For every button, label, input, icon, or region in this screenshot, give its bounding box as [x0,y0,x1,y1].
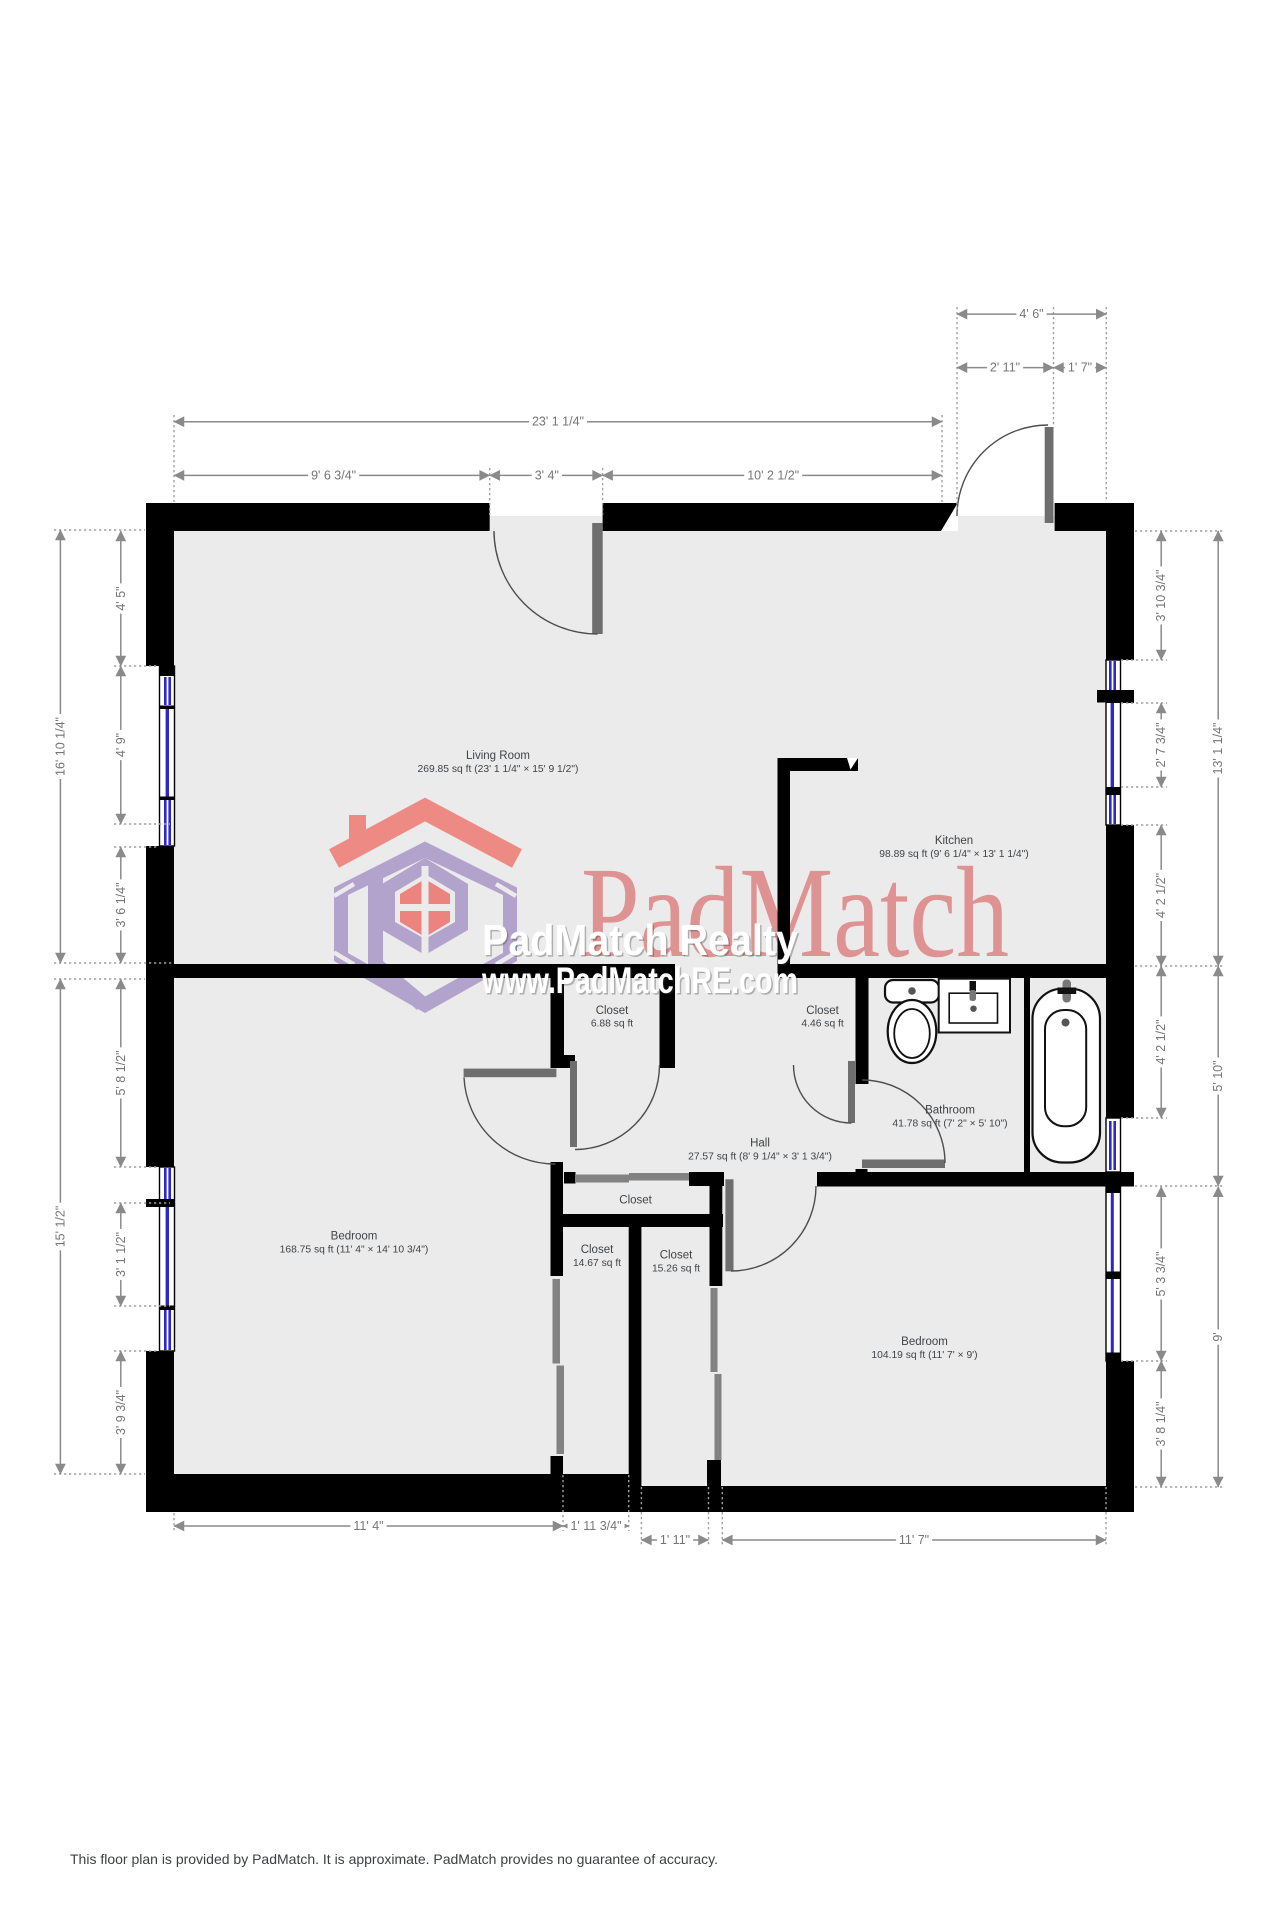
svg-text:Kitchen: Kitchen [935,835,973,847]
svg-text:6.88 sq ft: 6.88 sq ft [591,1019,633,1030]
svg-text:4' 5": 4' 5" [114,586,128,610]
svg-text:Closet: Closet [596,1005,629,1017]
svg-text:5' 3 3/4": 5' 3 3/4" [1154,1251,1168,1296]
svg-text:www.PadMatchRE.com: www.PadMatchRE.com [481,960,798,1001]
svg-text:This floor plan is provided by: This floor plan is provided by PadMatch.… [70,1851,718,1867]
svg-text:Closet: Closet [660,1250,693,1262]
svg-text:Closet: Closet [619,1194,652,1206]
svg-text:11' 4": 11' 4" [353,1519,383,1533]
svg-text:Living Room: Living Room [466,750,530,762]
svg-text:3' 1 1/2": 3' 1 1/2" [114,1232,128,1277]
svg-text:Bedroom: Bedroom [901,1336,948,1348]
svg-text:3' 4": 3' 4" [535,468,559,482]
svg-text:Closet: Closet [581,1244,614,1256]
svg-text:3' 6 1/4": 3' 6 1/4" [114,882,128,927]
svg-text:3' 8 1/4": 3' 8 1/4" [1154,1401,1168,1446]
svg-text:1' 7": 1' 7" [1068,361,1092,375]
svg-text:14.67 sq ft: 14.67 sq ft [573,1258,621,1269]
svg-text:3' 10 3/4": 3' 10 3/4" [1154,569,1168,621]
svg-text:PadMatch Realty: PadMatch Realty [482,916,798,965]
svg-text:4' 2 1/2": 4' 2 1/2" [1154,1019,1168,1064]
svg-text:4.46 sq ft: 4.46 sq ft [801,1019,843,1030]
svg-text:41.78 sq ft (7' 2" × 5' 10"): 41.78 sq ft (7' 2" × 5' 10") [892,1119,1007,1130]
svg-text:104.19 sq ft (11' 7' × 9'): 104.19 sq ft (11' 7' × 9') [871,1350,977,1361]
svg-text:9' 6 3/4": 9' 6 3/4" [311,468,356,482]
svg-text:Closet: Closet [806,1005,839,1017]
svg-text:13' 1 1/4": 13' 1 1/4" [1211,722,1225,774]
svg-text:5' 10": 5' 10" [1211,1060,1225,1091]
svg-text:9': 9' [1211,1332,1225,1341]
svg-text:1' 11": 1' 11" [660,1533,690,1547]
svg-text:15.26 sq ft: 15.26 sq ft [652,1264,700,1275]
svg-text:10' 2 1/2": 10' 2 1/2" [747,468,799,482]
svg-text:4' 6": 4' 6" [1019,307,1043,321]
svg-text:269.85 sq ft (23' 1 1/4" × 15': 269.85 sq ft (23' 1 1/4" × 15' 9 1/2") [418,764,579,775]
svg-text:Hall: Hall [750,1138,770,1150]
svg-text:168.75 sq ft (11' 4" × 14' 10: 168.75 sq ft (11' 4" × 14' 10 3/4") [280,1245,429,1256]
svg-text:2' 7 3/4": 2' 7 3/4" [1154,722,1168,767]
svg-text:11' 7": 11' 7" [899,1533,929,1547]
svg-text:27.57 sq ft (8' 9 1/4" × 3' 1: 27.57 sq ft (8' 9 1/4" × 3' 1 3/4") [688,1152,832,1163]
svg-text:1' 11 3/4": 1' 11 3/4" [570,1519,621,1533]
svg-text:Bathroom: Bathroom [925,1105,975,1117]
svg-text:4' 2 1/2": 4' 2 1/2" [1154,873,1168,918]
svg-text:98.89 sq ft (9' 6 1/4" × 13' 1: 98.89 sq ft (9' 6 1/4" × 13' 1 1/4") [879,849,1029,860]
svg-text:15' 1/2": 15' 1/2" [53,1206,67,1248]
svg-text:23' 1 1/4": 23' 1 1/4" [532,415,584,429]
svg-text:4' 9": 4' 9" [114,733,128,757]
svg-text:3' 9 3/4": 3' 9 3/4" [114,1390,128,1435]
svg-text:Bedroom: Bedroom [331,1231,378,1243]
svg-text:16' 10 1/4": 16' 10 1/4" [53,717,67,776]
svg-text:2' 11": 2' 11" [990,361,1020,375]
svg-text:5' 8 1/2": 5' 8 1/2" [114,1050,128,1095]
